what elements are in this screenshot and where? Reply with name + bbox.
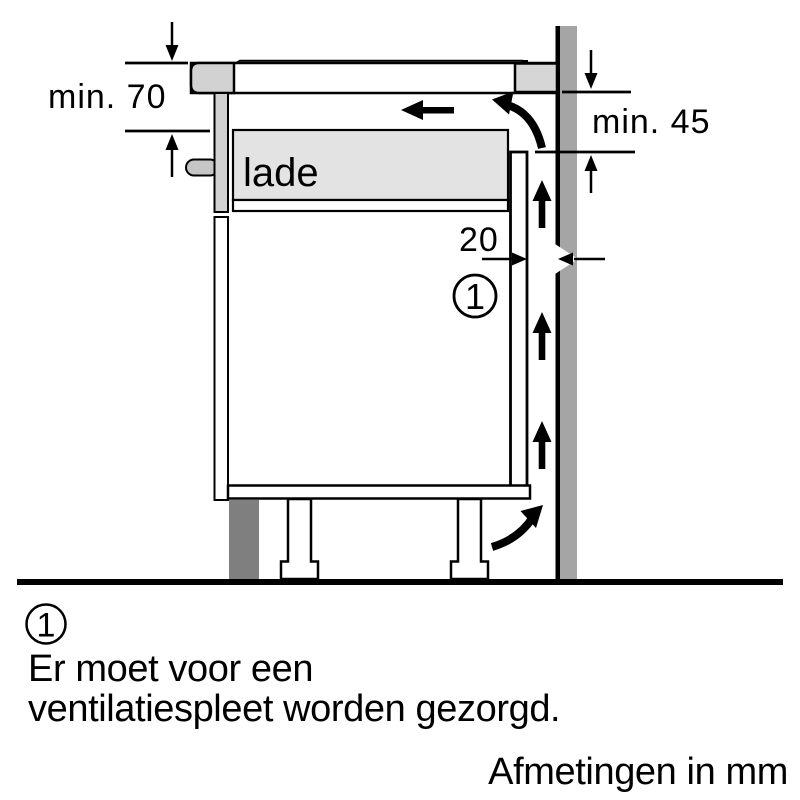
dim-arrow-up-head xyxy=(585,155,598,171)
airflow-left-arrow xyxy=(401,100,454,120)
airflow-up-arrow-1 xyxy=(533,180,552,228)
dimension-min-70: min. 70 xyxy=(48,22,210,177)
hob-left-trim xyxy=(191,63,234,93)
footnote: 1 Er moet voor een ventilatiespleet word… xyxy=(27,605,789,794)
dimension-gap-20: 20 xyxy=(459,221,605,274)
dim-arrow-up-head xyxy=(166,134,179,150)
units-note: Afmetingen in mm xyxy=(488,751,788,793)
cabinet-bottom-board xyxy=(228,486,530,499)
cabinet-door-front xyxy=(215,217,229,500)
hob-right-trim xyxy=(515,64,557,93)
footnote-line-2: ventilatiespleet worden gezorgd. xyxy=(28,688,560,730)
dim-arrow-down-head xyxy=(166,45,179,61)
wall-edge-line xyxy=(556,26,561,580)
hob-installation-diagram: lade xyxy=(0,0,800,800)
cabinet-back-panel xyxy=(511,152,528,486)
installation-diagram-page: lade xyxy=(0,0,800,800)
footnote-marker-number: 1 xyxy=(37,607,56,645)
drawer-front-panel xyxy=(215,93,229,212)
worktop xyxy=(191,63,557,93)
airflow-curved-arrow-bottom xyxy=(492,505,543,547)
gap-20-label: 20 xyxy=(459,221,499,259)
drawer-label: lade xyxy=(243,151,319,195)
min-45-label: min. 45 xyxy=(592,103,711,141)
footnote-line-1: Er moet voor een xyxy=(28,648,313,690)
airflow-up-arrow-2 xyxy=(533,312,552,360)
min-70-label: min. 70 xyxy=(48,78,167,116)
plinth xyxy=(229,500,259,580)
airflow-up-arrow-3 xyxy=(533,421,552,469)
cabinet-leg-right xyxy=(451,499,488,579)
wall xyxy=(560,26,577,580)
drawer-handle xyxy=(186,160,218,176)
drawer-bottom-rail xyxy=(233,200,508,211)
callout-1: 1 xyxy=(454,275,496,317)
dim-arrow-down-head xyxy=(585,73,598,89)
floor-line xyxy=(17,579,783,585)
callout-number: 1 xyxy=(465,276,485,317)
cabinet-leg-left xyxy=(281,499,318,579)
